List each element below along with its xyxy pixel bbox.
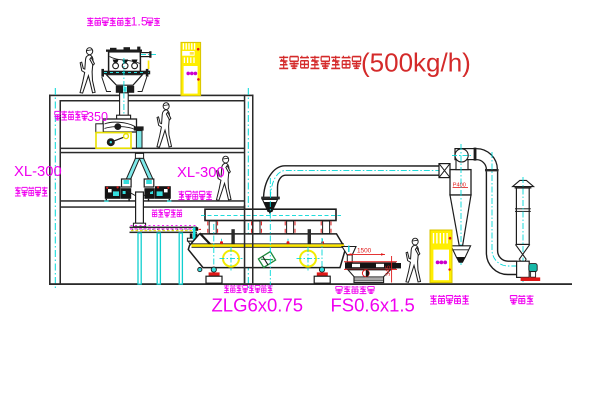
svg-text:FS0.6x1.5: FS0.6x1.5: [331, 295, 415, 316]
svg-text:1.5: 1.5: [131, 15, 148, 29]
svg-text:ZLG6x0.75: ZLG6x0.75: [212, 295, 304, 316]
svg-text:350: 350: [87, 110, 108, 124]
svg-text:(500kg/h): (500kg/h): [361, 48, 471, 78]
svg-text:XL-300: XL-300: [177, 165, 225, 181]
svg-text:1500: 1500: [357, 248, 372, 255]
svg-text:XL-300: XL-300: [14, 164, 62, 180]
svg-text:345: 345: [385, 265, 392, 276]
